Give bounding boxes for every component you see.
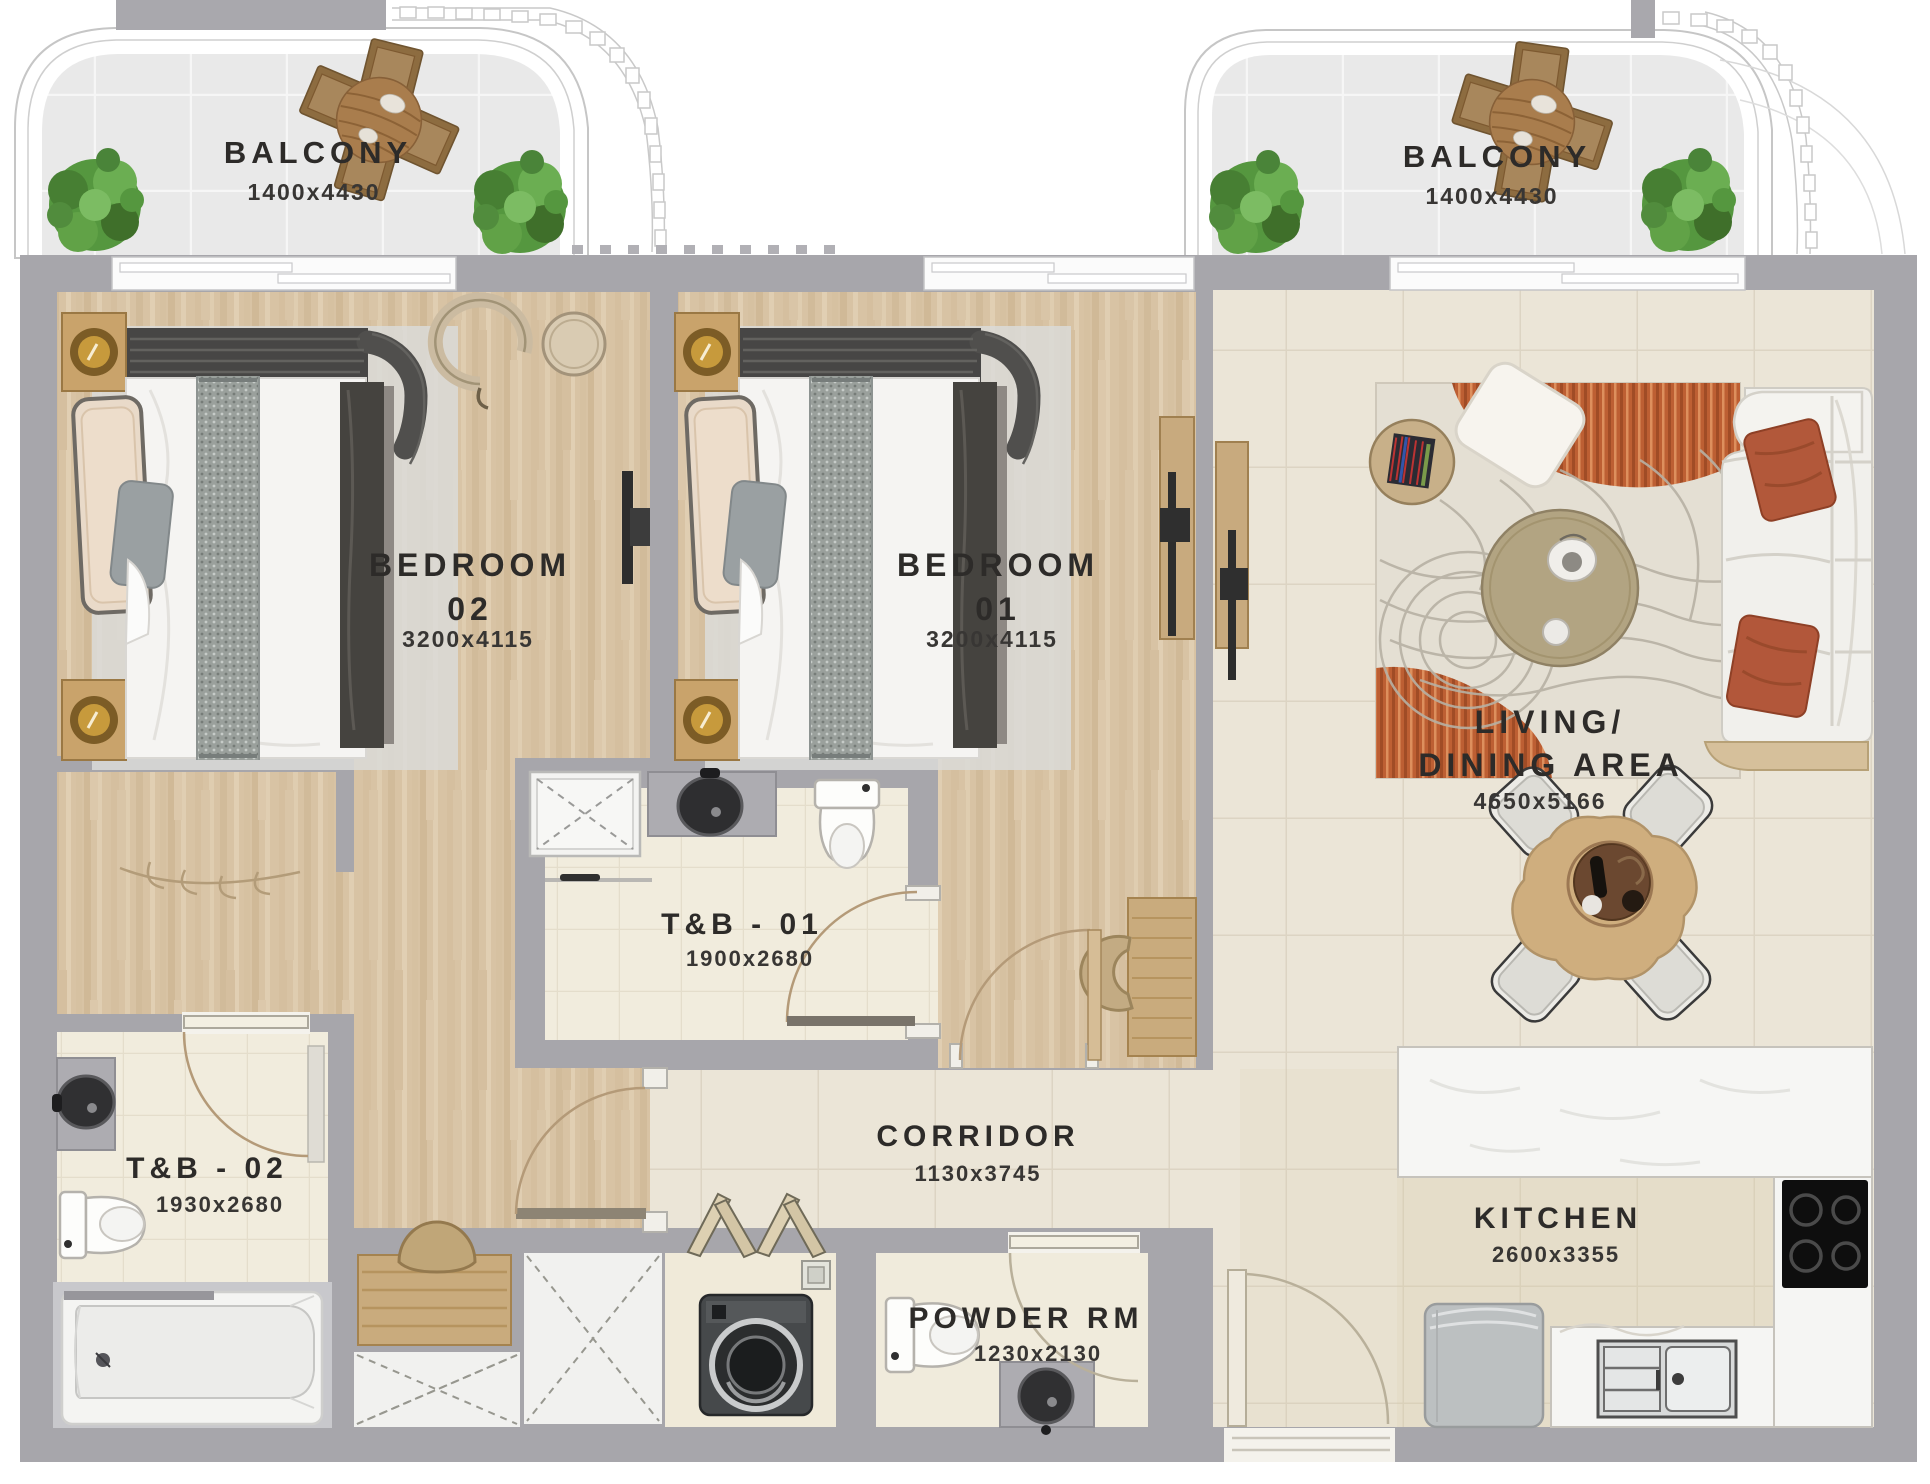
svg-text:2600x3355: 2600x3355 [1492,1242,1620,1267]
svg-text:KITCHEN: KITCHEN [1474,1202,1642,1235]
svg-text:BALCONY: BALCONY [1403,139,1591,174]
svg-text:1900x2680: 1900x2680 [686,946,814,971]
svg-text:1400x4430: 1400x4430 [247,179,380,205]
svg-text:DINING AREA: DINING AREA [1418,747,1683,783]
svg-text:BEDROOM: BEDROOM [369,547,571,583]
svg-text:POWDER RM: POWDER RM [909,1302,1144,1335]
svg-text:T&B - 02: T&B - 02 [126,1152,288,1185]
svg-text:02: 02 [447,591,493,627]
svg-text:1130x3745: 1130x3745 [915,1161,1042,1186]
svg-text:4650x5166: 4650x5166 [1473,788,1606,814]
svg-text:BEDROOM: BEDROOM [897,547,1099,583]
svg-text:1930x2680: 1930x2680 [156,1192,284,1217]
svg-text:T&B - 01: T&B - 01 [661,908,823,941]
svg-text:CORRIDOR: CORRIDOR [876,1120,1079,1153]
svg-text:1400x4430: 1400x4430 [1425,183,1558,209]
svg-text:1230x2130: 1230x2130 [974,1341,1102,1366]
svg-text:BALCONY: BALCONY [224,135,412,170]
svg-text:LIVING/: LIVING/ [1475,704,1626,740]
svg-text:3200x4115: 3200x4115 [926,626,1058,652]
svg-text:01: 01 [975,591,1021,627]
svg-text:3200x4115: 3200x4115 [402,626,534,652]
